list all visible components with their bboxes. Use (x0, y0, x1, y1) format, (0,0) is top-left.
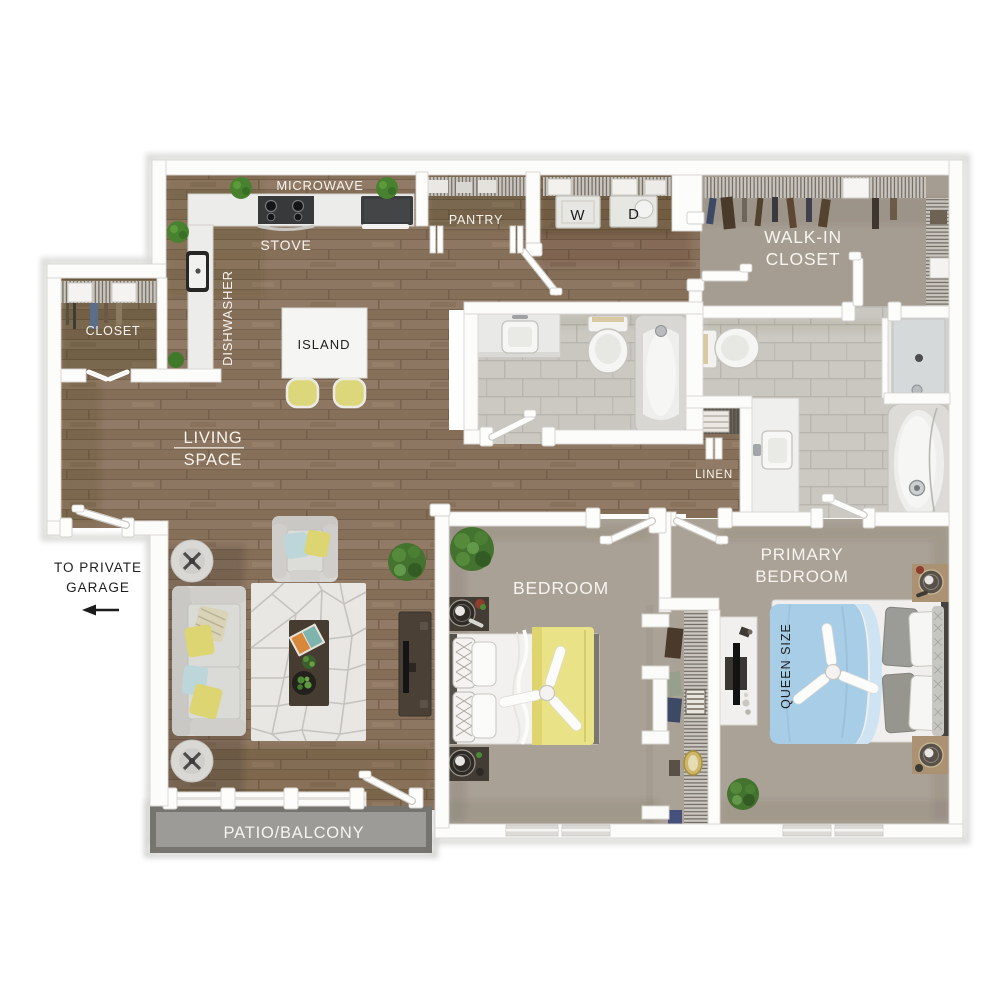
svg-text:DISHWASHER: DISHWASHER (220, 270, 235, 366)
svg-text:MICROWAVE: MICROWAVE (276, 178, 363, 193)
svg-text:SPACE: SPACE (184, 451, 243, 469)
svg-text:PATIO/BALCONY: PATIO/BALCONY (224, 824, 365, 842)
svg-text:PANTRY: PANTRY (449, 213, 503, 227)
svg-text:LIVING: LIVING (184, 429, 243, 447)
svg-text:CLOSET: CLOSET (86, 324, 141, 338)
svg-text:QUEEN SIZE: QUEEN SIZE (779, 623, 793, 709)
svg-text:BEDROOM: BEDROOM (755, 567, 848, 586)
svg-text:CLOSET: CLOSET (766, 249, 841, 269)
svg-text:D: D (628, 206, 640, 223)
svg-text:W: W (570, 207, 585, 224)
svg-text:TO PRIVATE: TO PRIVATE (54, 560, 142, 575)
svg-text:GARAGE: GARAGE (66, 580, 130, 595)
svg-text:BEDROOM: BEDROOM (513, 578, 609, 598)
svg-text:PRIMARY: PRIMARY (761, 545, 844, 564)
svg-text:LINEN: LINEN (695, 469, 733, 481)
svg-text:STOVE: STOVE (260, 237, 311, 253)
svg-text:WALK-IN: WALK-IN (764, 227, 842, 247)
svg-text:ISLAND: ISLAND (298, 337, 351, 352)
